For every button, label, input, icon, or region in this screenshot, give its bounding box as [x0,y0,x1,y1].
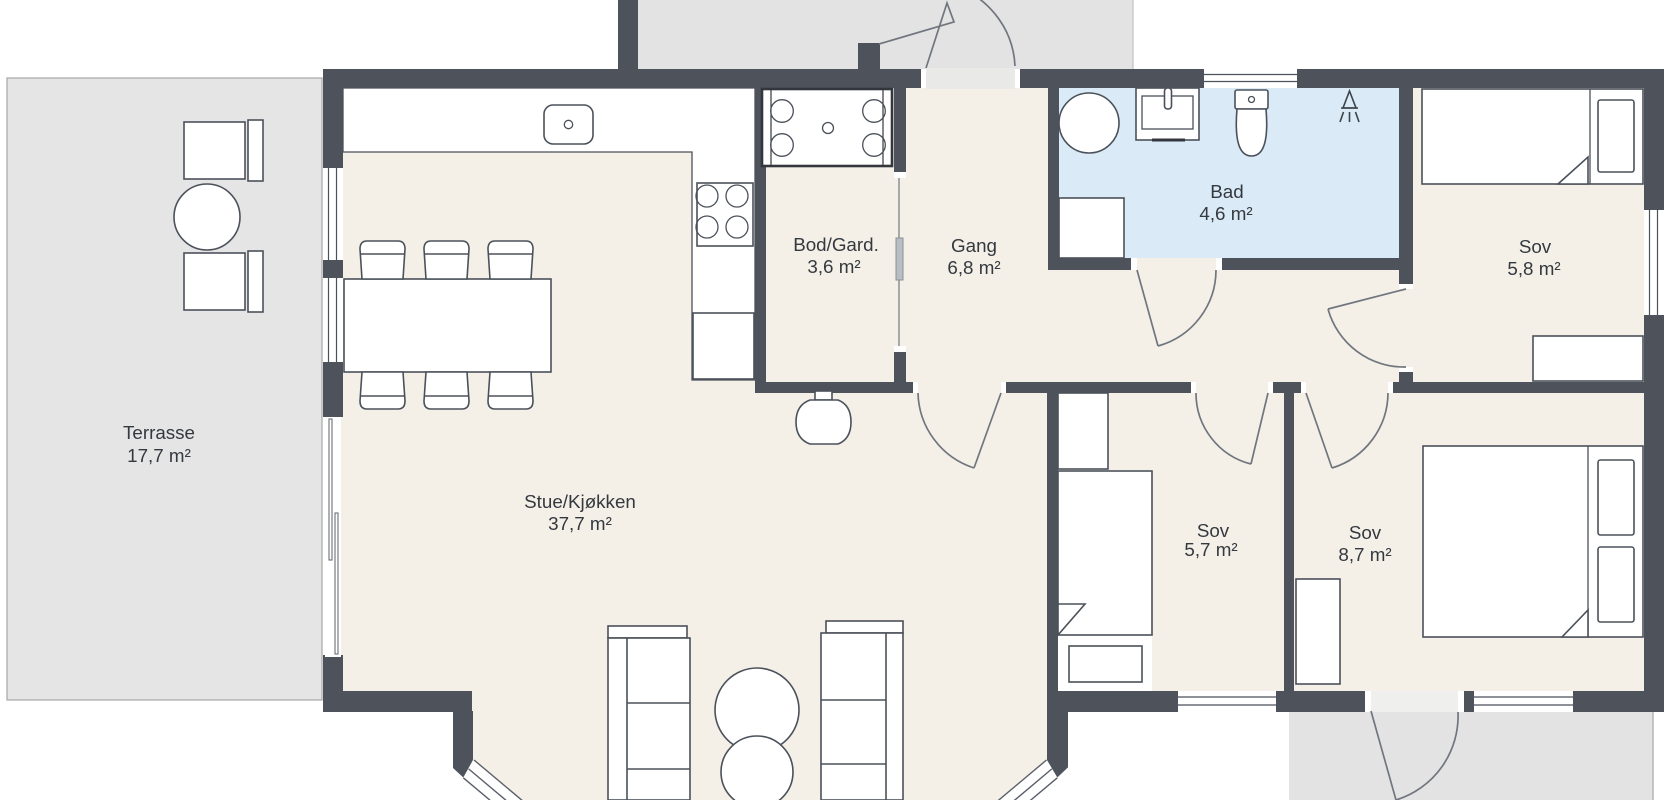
svg-text:Sov: Sov [1197,520,1230,541]
svg-text:4,6 m²: 4,6 m² [1199,203,1252,224]
svg-text:Stue/Kjøkken: Stue/Kjøkken [524,491,636,512]
svg-text:Gang: Gang [951,235,997,256]
svg-text:6,8 m²: 6,8 m² [947,257,1000,278]
svg-text:Bad: Bad [1210,181,1243,202]
svg-text:8,7 m²: 8,7 m² [1338,544,1391,565]
svg-text:37,7 m²: 37,7 m² [548,513,612,534]
svg-text:5,7 m²: 5,7 m² [1184,539,1237,560]
svg-text:3,6 m²: 3,6 m² [807,256,860,277]
svg-text:Terrasse: Terrasse [123,422,195,443]
svg-text:Sov: Sov [1519,236,1552,257]
svg-text:Bod/Gard.: Bod/Gard. [793,234,879,255]
svg-text:Sov: Sov [1349,522,1382,543]
svg-text:5,8 m²: 5,8 m² [1507,258,1560,279]
svg-text:17,7 m²: 17,7 m² [127,445,191,466]
